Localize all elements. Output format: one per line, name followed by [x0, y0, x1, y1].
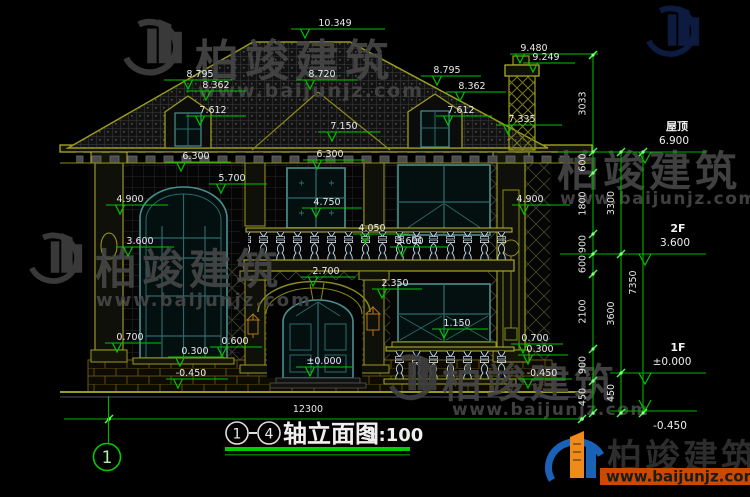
pilaster-2f-left [245, 163, 265, 226]
svg-text:8.795: 8.795 [186, 69, 213, 80]
watermark-logo-top-right [649, 6, 699, 54]
title-scale: 1:100 [366, 425, 423, 446]
logo-tower-blue [586, 446, 596, 478]
watermark-site-left: www.baijunjz.com [96, 290, 312, 311]
svg-text:10.349: 10.349 [318, 18, 351, 29]
chain-inner-7: 450 [578, 388, 589, 406]
f2-value: 3.600 [660, 237, 690, 249]
brand-logo: 柏竣建筑 www.baijunjz.com [549, 431, 750, 486]
roof-value: 6.900 [659, 135, 689, 147]
svg-text:7.612: 7.612 [199, 105, 226, 116]
svg-text:3.600: 3.600 [396, 236, 423, 247]
svg-text:7.335: 7.335 [508, 114, 535, 125]
svg-text:8.362: 8.362 [458, 81, 485, 92]
svg-text:±0.000: ±0.000 [306, 356, 341, 367]
svg-text:5.700: 5.700 [218, 173, 245, 184]
chain-inner-4: 600 [578, 255, 589, 273]
f2-label: 2F [670, 222, 685, 235]
overall-width-value: 12300 [293, 404, 323, 415]
chain-mid-2: 450 [606, 384, 617, 402]
pilaster-2f-right [364, 163, 384, 226]
drawing-title: 1 4 轴立面图 1:100 [225, 420, 423, 456]
chain-inner-5: 2100 [578, 299, 589, 323]
chain-inner-0: 3033 [578, 91, 589, 115]
svg-text:4.050: 4.050 [358, 223, 385, 234]
svg-text:4.900: 4.900 [516, 194, 543, 205]
svg-text:8.720: 8.720 [308, 69, 335, 80]
svg-text:0.300: 0.300 [526, 344, 553, 355]
chain-inner-1: 600 [578, 153, 589, 171]
logo-site-text: www.baijunjz.com [606, 468, 750, 486]
watermark-logo-top-left [126, 19, 182, 72]
f1-label: 1F [670, 341, 685, 354]
svg-text:-0.450: -0.450 [527, 368, 558, 379]
svg-text:4.750: 4.750 [313, 197, 340, 208]
axis-bubble-number: 1 [102, 448, 113, 468]
level-ridge: 10.349 [291, 18, 385, 38]
basement-value: -0.450 [653, 420, 687, 432]
watermark-brand-left: 柏竣建筑 [95, 245, 283, 294]
title-axis-start: 1 [233, 427, 242, 443]
watermark-site-bottom: www.baijunjz.com [452, 400, 650, 420]
elevation-drawing: 柏竣建筑 www.baijunjz.com 柏竣建筑 www.baijunjz.… [0, 0, 750, 497]
title-text: 轴立面图 [283, 420, 379, 448]
chain-inner-3: 900 [578, 235, 589, 253]
svg-text:8.362: 8.362 [202, 80, 229, 91]
svg-text:0.700: 0.700 [116, 332, 143, 343]
watermark-site-right: www.baijunjz.com [560, 189, 750, 209]
svg-text:3.600: 3.600 [126, 236, 153, 247]
chain-mid-1: 3600 [606, 301, 617, 325]
svg-text:6.300: 6.300 [182, 151, 209, 162]
svg-text:2.700: 2.700 [312, 266, 339, 277]
svg-text:7.612: 7.612 [447, 105, 474, 116]
svg-text:0.600: 0.600 [221, 336, 248, 347]
svg-text:6.300: 6.300 [316, 149, 343, 160]
chain-inner-6: 900 [578, 356, 589, 374]
chain-mid-0: 3300 [606, 191, 617, 215]
title-axis-end: 4 [265, 427, 274, 443]
chain-outer-0: 7350 [628, 270, 639, 294]
cad-elevation-canvas: 柏竣建筑 www.baijunjz.com 柏竣建筑 www.baijunjz.… [0, 0, 750, 497]
svg-text:9.249: 9.249 [532, 52, 559, 63]
f1-value: ±0.000 [653, 356, 692, 368]
roof-label: 屋顶 [666, 120, 688, 133]
svg-text:2.350: 2.350 [381, 278, 408, 289]
svg-text:0.700: 0.700 [521, 333, 548, 344]
svg-text:7.150: 7.150 [330, 121, 357, 132]
watermark-logo-mid-left [32, 233, 82, 281]
window-2f-right [398, 165, 490, 235]
logo-tower-orange [570, 431, 584, 478]
svg-text:4.900: 4.900 [116, 194, 143, 205]
chain-inner-2: 1800 [578, 191, 589, 215]
title-underline [225, 447, 410, 451]
svg-text:8.795: 8.795 [433, 65, 460, 76]
title-underline-thin [225, 454, 410, 456]
svg-text:0.300: 0.300 [181, 346, 208, 357]
svg-text:1.150: 1.150 [443, 318, 470, 329]
svg-text:-0.450: -0.450 [176, 368, 207, 379]
